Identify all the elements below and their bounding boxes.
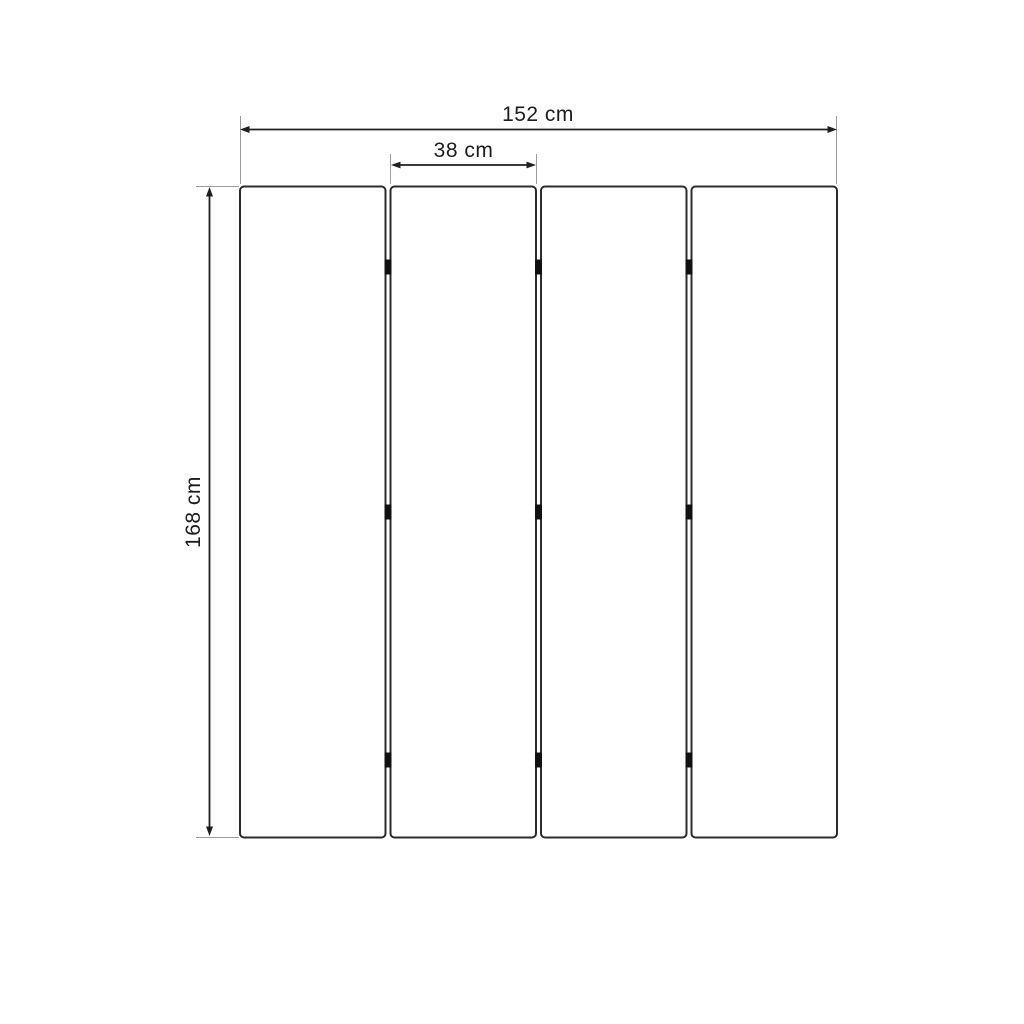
- hinge-mark: [686, 753, 693, 768]
- panel-2: [391, 187, 537, 838]
- arrow-left-icon: [391, 162, 401, 169]
- arrow-down-icon: [206, 827, 213, 837]
- panel-width-dimension: 38 cm: [391, 139, 536, 168]
- hinge-mark: [385, 260, 392, 275]
- panel-1: [240, 187, 386, 838]
- panel-3: [541, 187, 687, 838]
- arrow-up-icon: [206, 187, 213, 197]
- hinge-mark: [385, 753, 392, 768]
- hinge-mark: [686, 505, 693, 520]
- hinge-mark: [686, 260, 693, 275]
- panel-width-label: 38 cm: [434, 139, 494, 162]
- folding-screen-diagram: 152 cm 38 cm 168 cm: [0, 0, 1024, 1024]
- total-width-label: 152 cm: [502, 103, 574, 126]
- dimension-diagram-canvas: 152 cm 38 cm 168 cm: [0, 0, 1024, 1024]
- hinge-mark: [535, 505, 542, 520]
- panel-4: [692, 187, 838, 838]
- hinge-mark: [535, 260, 542, 275]
- height-label: 168 cm: [182, 476, 205, 548]
- height-dimension: 168 cm: [182, 187, 213, 836]
- arrow-right-icon: [527, 162, 537, 169]
- total-width-dimension: 152 cm: [240, 103, 837, 133]
- arrow-left-icon: [240, 126, 250, 133]
- hinge-mark: [385, 505, 392, 520]
- hinge-mark: [535, 753, 542, 768]
- arrow-right-icon: [828, 126, 838, 133]
